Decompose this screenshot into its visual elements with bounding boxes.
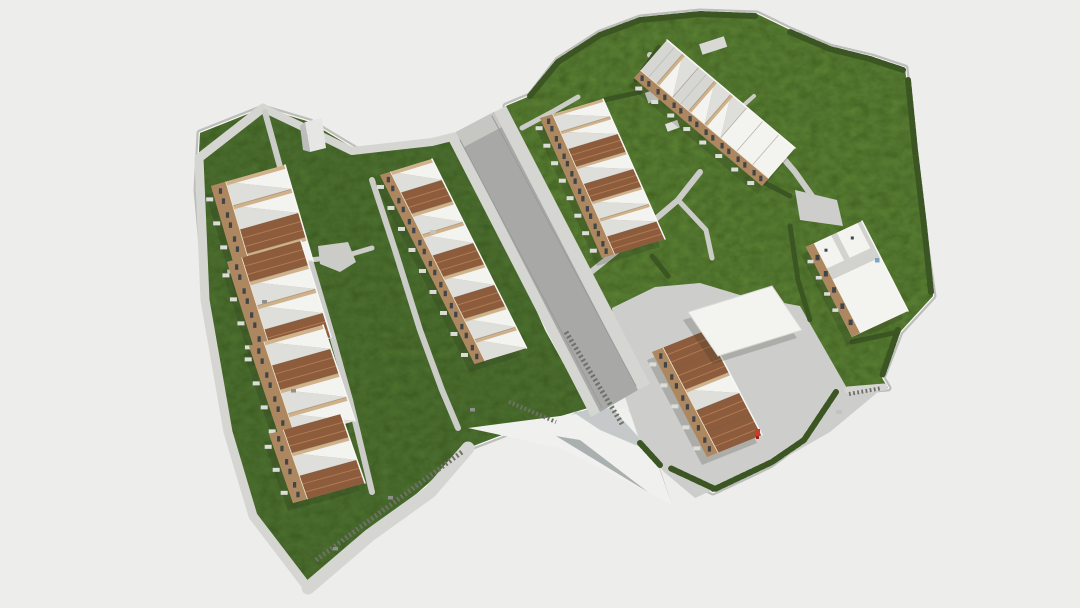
- render-viewport: [0, 0, 1080, 608]
- scene-root: [197, 12, 933, 588]
- site-plan-render: [0, 0, 1080, 608]
